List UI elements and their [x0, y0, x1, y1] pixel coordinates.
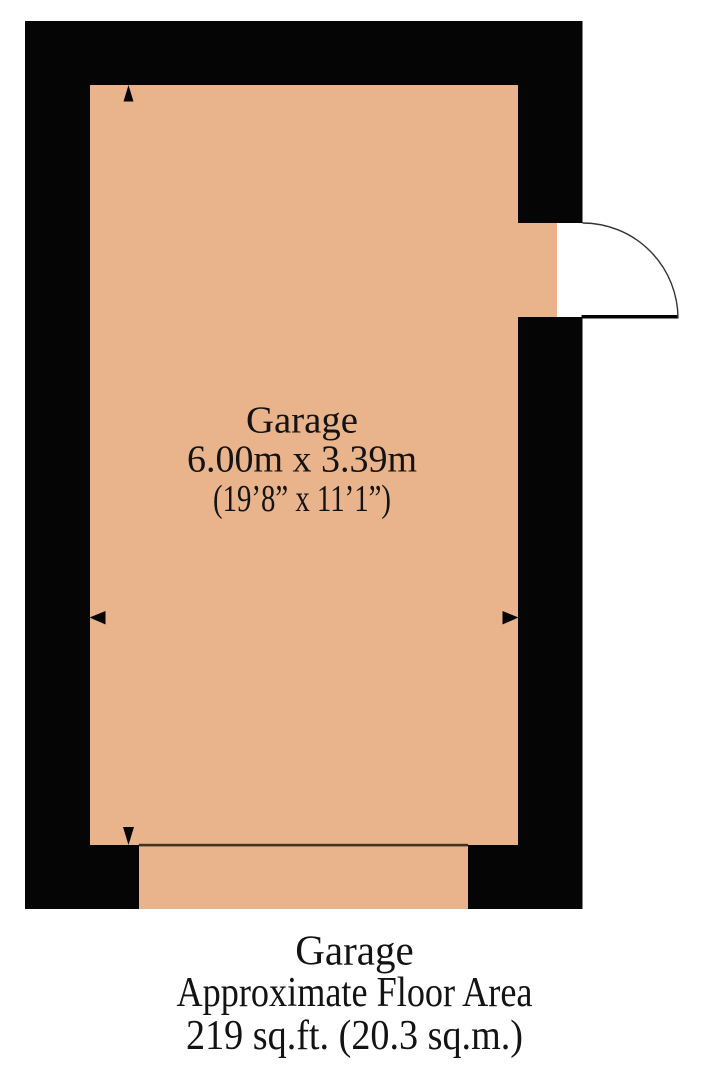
svg-text:219 sq.ft. (20.3 sq.m.): 219 sq.ft. (20.3 sq.m.): [186, 1012, 523, 1059]
svg-text:Garage: Garage: [246, 399, 358, 441]
svg-text:(19’8” x 11’1”): (19’8” x 11’1”): [213, 478, 391, 520]
svg-text:6.00m x 3.39m: 6.00m x 3.39m: [187, 438, 417, 480]
svg-text:Approximate Floor Area: Approximate Floor Area: [177, 969, 533, 1016]
svg-text:Garage: Garage: [295, 927, 414, 974]
